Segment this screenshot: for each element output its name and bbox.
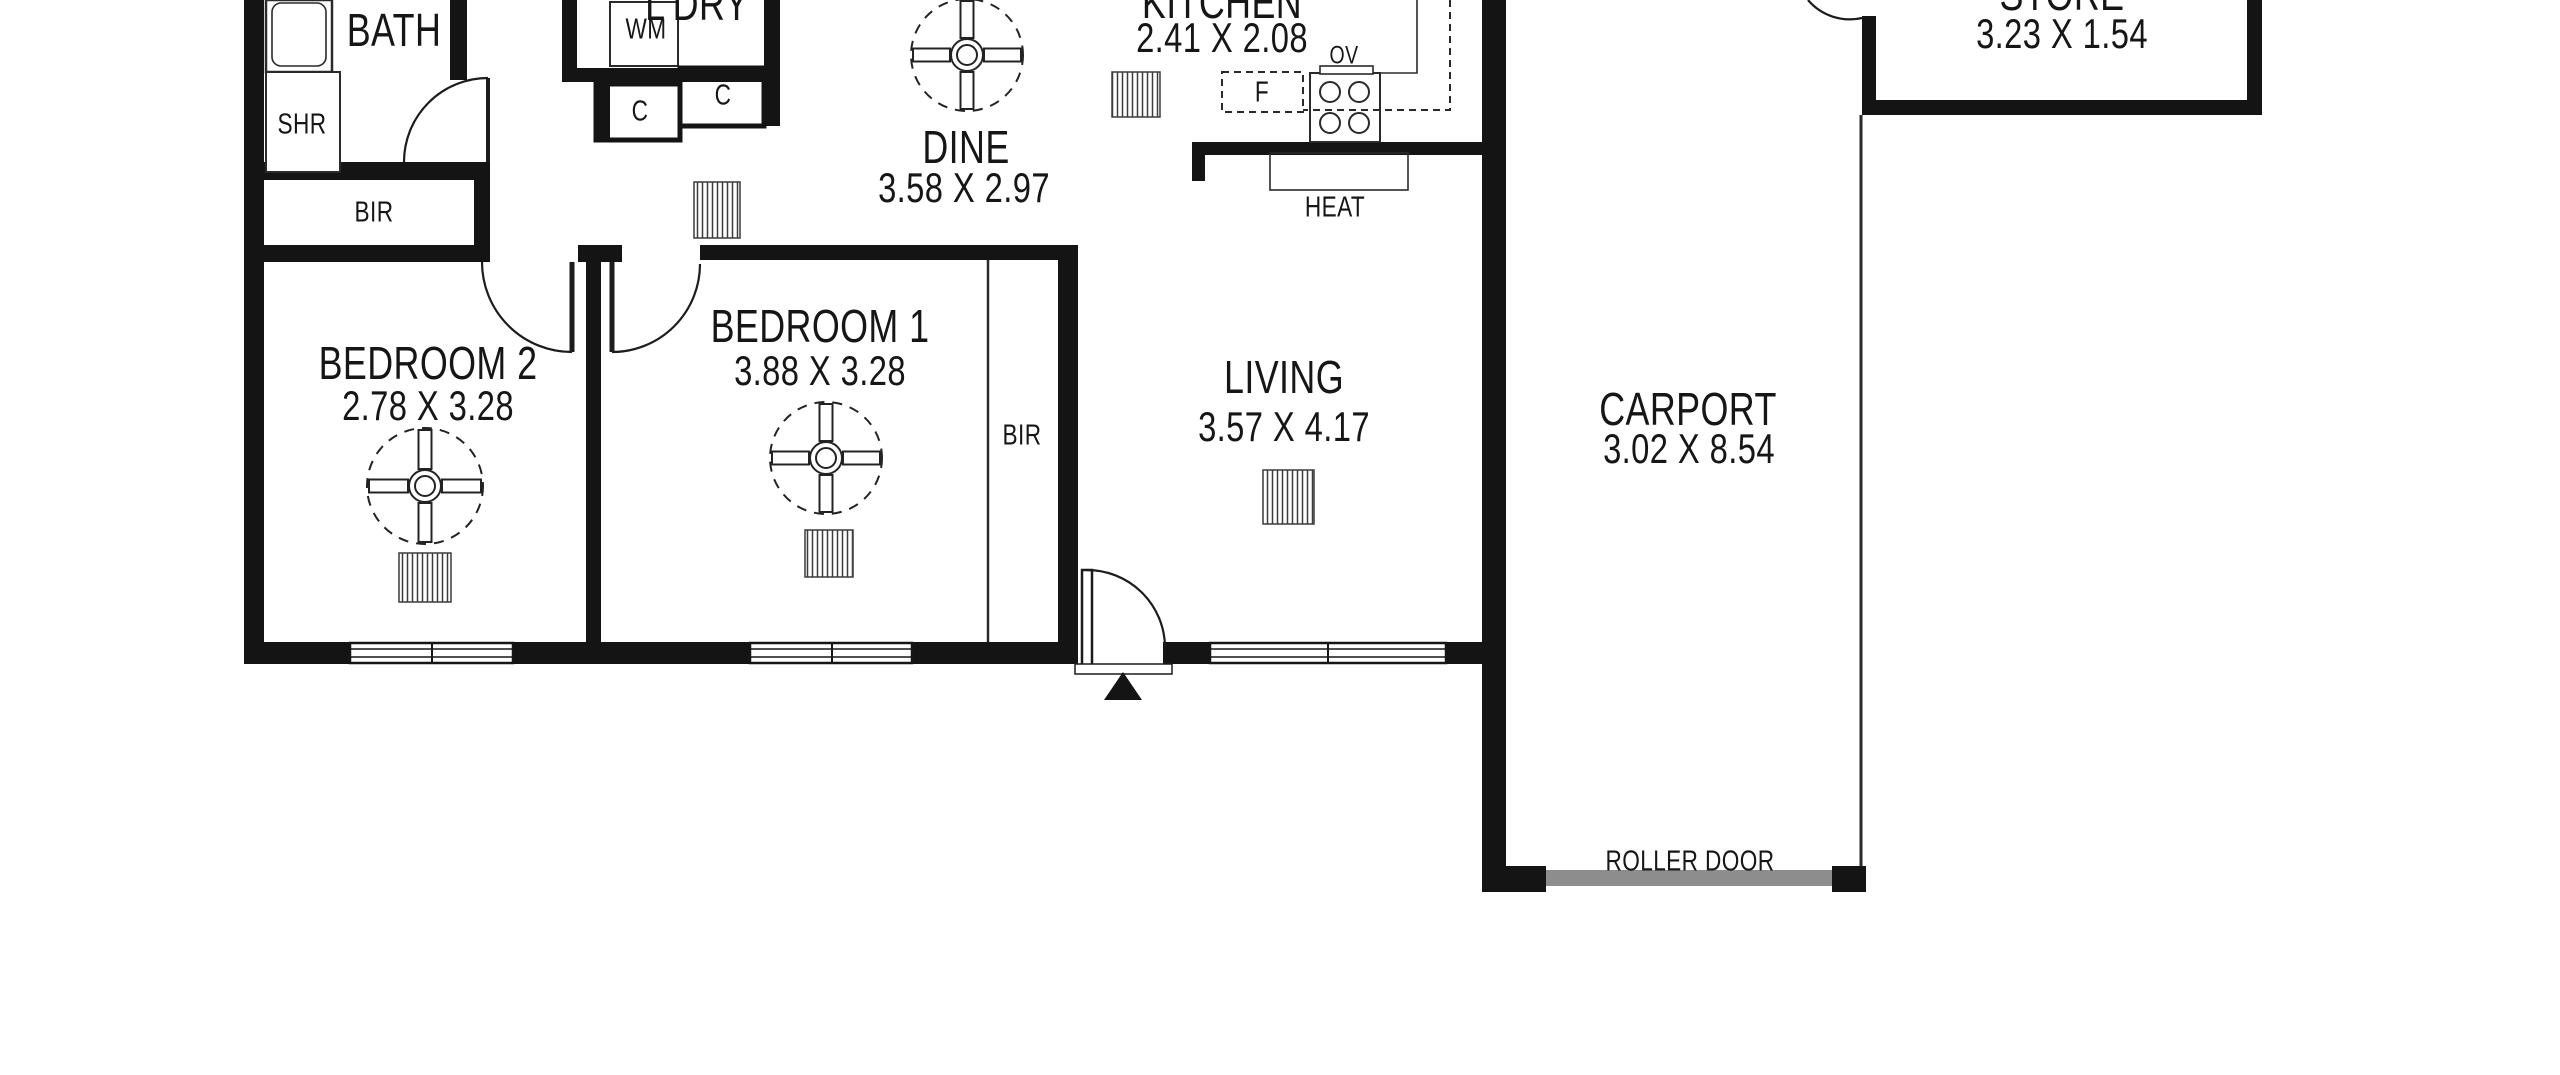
room-dims-bedroom2: 2.78 X 3.28 [342,385,514,427]
entry-arrow-icon [1104,672,1142,700]
fixture-label-cupboard-2: C [715,82,732,111]
wall-kitchen-stub [1192,142,1205,181]
floor-plan-canvas [0,0,2560,1075]
fixture-label-fridge: F [1255,79,1269,108]
ceiling-fan-bedroom1-icon [770,402,882,514]
vent-kitchen-icon [1112,72,1160,117]
room-label-bedroom1: BEDROOM 1 [711,303,930,349]
ceiling-fan-dine-icon [911,0,1023,111]
floor-plan-page: BATH SHR WM L'DRY C C BIR DINE 3.58 X 2.… [0,0,2560,1075]
room-dims-dine: 3.58 X 2.97 [878,167,1050,209]
wall-living-left [1058,245,1078,642]
room-dims-living: 3.57 X 4.17 [1198,406,1370,448]
wall-bath-right [450,0,467,80]
vent-hall-icon [694,182,740,238]
vent-bedroom1-icon [805,530,853,577]
wall-right-exterior [1482,0,1506,892]
wall-bedroom-divider [586,245,601,642]
wall-carport-corner-right [1832,866,1866,892]
heater-icon [1270,153,1408,190]
room-dims-store: 3.23 X 1.54 [1976,13,2148,55]
door-bedroom1 [612,262,700,352]
room-dims-bedroom1: 3.88 X 3.28 [734,350,906,392]
fixture-label-bedroom1-robe: BIR [1003,422,1042,451]
room-label-living: LIVING [1224,354,1344,400]
kitchen-counter-line [1380,0,1417,73]
wall-store-bottom [1862,100,2262,115]
fixture-label-cupboard-1: C [632,98,649,127]
vent-bedroom2-icon [399,553,451,602]
fixture-label-roller-door: ROLLER DOOR [1606,848,1775,877]
fixture-label-heater: HEAT [1305,194,1365,223]
door-bath [404,78,488,162]
fixture-label-hall-robe: BIR [355,199,394,228]
room-label-bath: BATH [347,7,442,53]
room-dims-carport: 3.02 X 8.54 [1603,428,1775,470]
wall-store-right [2247,0,2262,112]
bathtub-icon [266,0,332,72]
room-label-laundry: L'DRY [645,0,749,27]
room-dims-kitchen: 2.41 X 2.08 [1136,17,1308,59]
bath-fixtures [266,0,340,172]
fixture-label-shower: SHR [278,111,327,140]
stove-icon [1310,66,1380,142]
room-label-bedroom2: BEDROOM 2 [319,340,538,386]
wall-bedroom1-top [700,245,1075,260]
wall-bedroom2-top [244,245,490,262]
door-store [1808,0,1862,19]
fixture-label-oven: OV [1330,44,1359,69]
wall-left-exterior [244,0,264,664]
wall-carport-corner-left [1482,866,1546,892]
ceiling-fan-bedroom2-icon [367,428,483,544]
vent-living-icon [1263,470,1314,524]
